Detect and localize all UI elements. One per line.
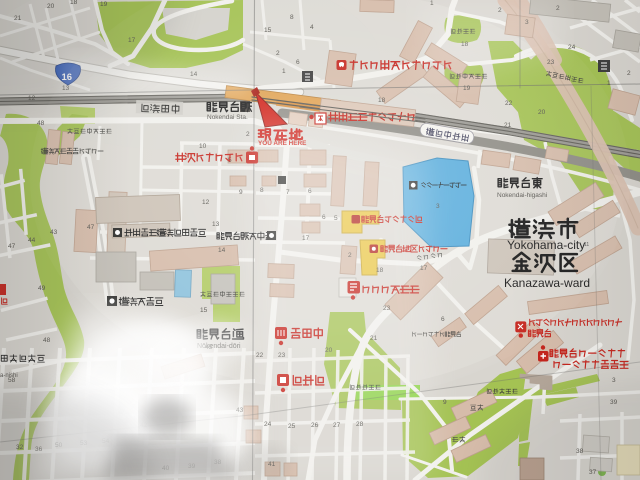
- svg-text:9: 9: [443, 399, 447, 406]
